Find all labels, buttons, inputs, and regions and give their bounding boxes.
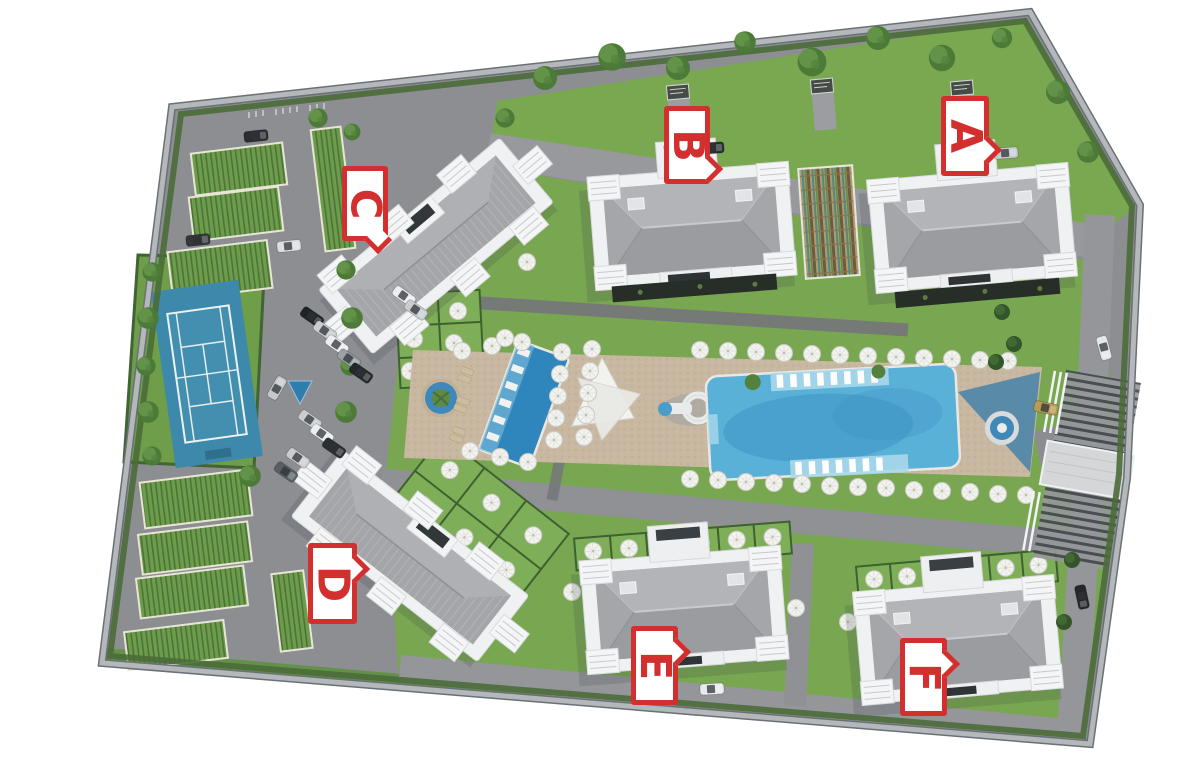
building-a-marker-label: A [943,119,987,153]
building-d-marker[interactable]: D [308,543,357,624]
building-f-marker[interactable]: F [900,638,947,716]
site-plan-rendering: A B C D E F [0,0,1200,758]
building-f-marker-label: F [902,662,945,691]
building-e-marker-label: E [633,651,676,680]
building-c-marker[interactable]: C [342,166,388,241]
trellis-pergola [798,165,860,278]
building-a-marker[interactable]: A [941,96,989,176]
building-c-marker-label: C [344,188,386,219]
building-d-marker-label: D [311,565,355,602]
building-b-marker-label: B [666,129,709,162]
building-e-marker[interactable]: E [631,626,678,705]
building-b-marker[interactable]: B [664,106,710,184]
main-pool [705,361,960,483]
site-map [0,0,1200,758]
round-planter-pool [423,380,459,416]
